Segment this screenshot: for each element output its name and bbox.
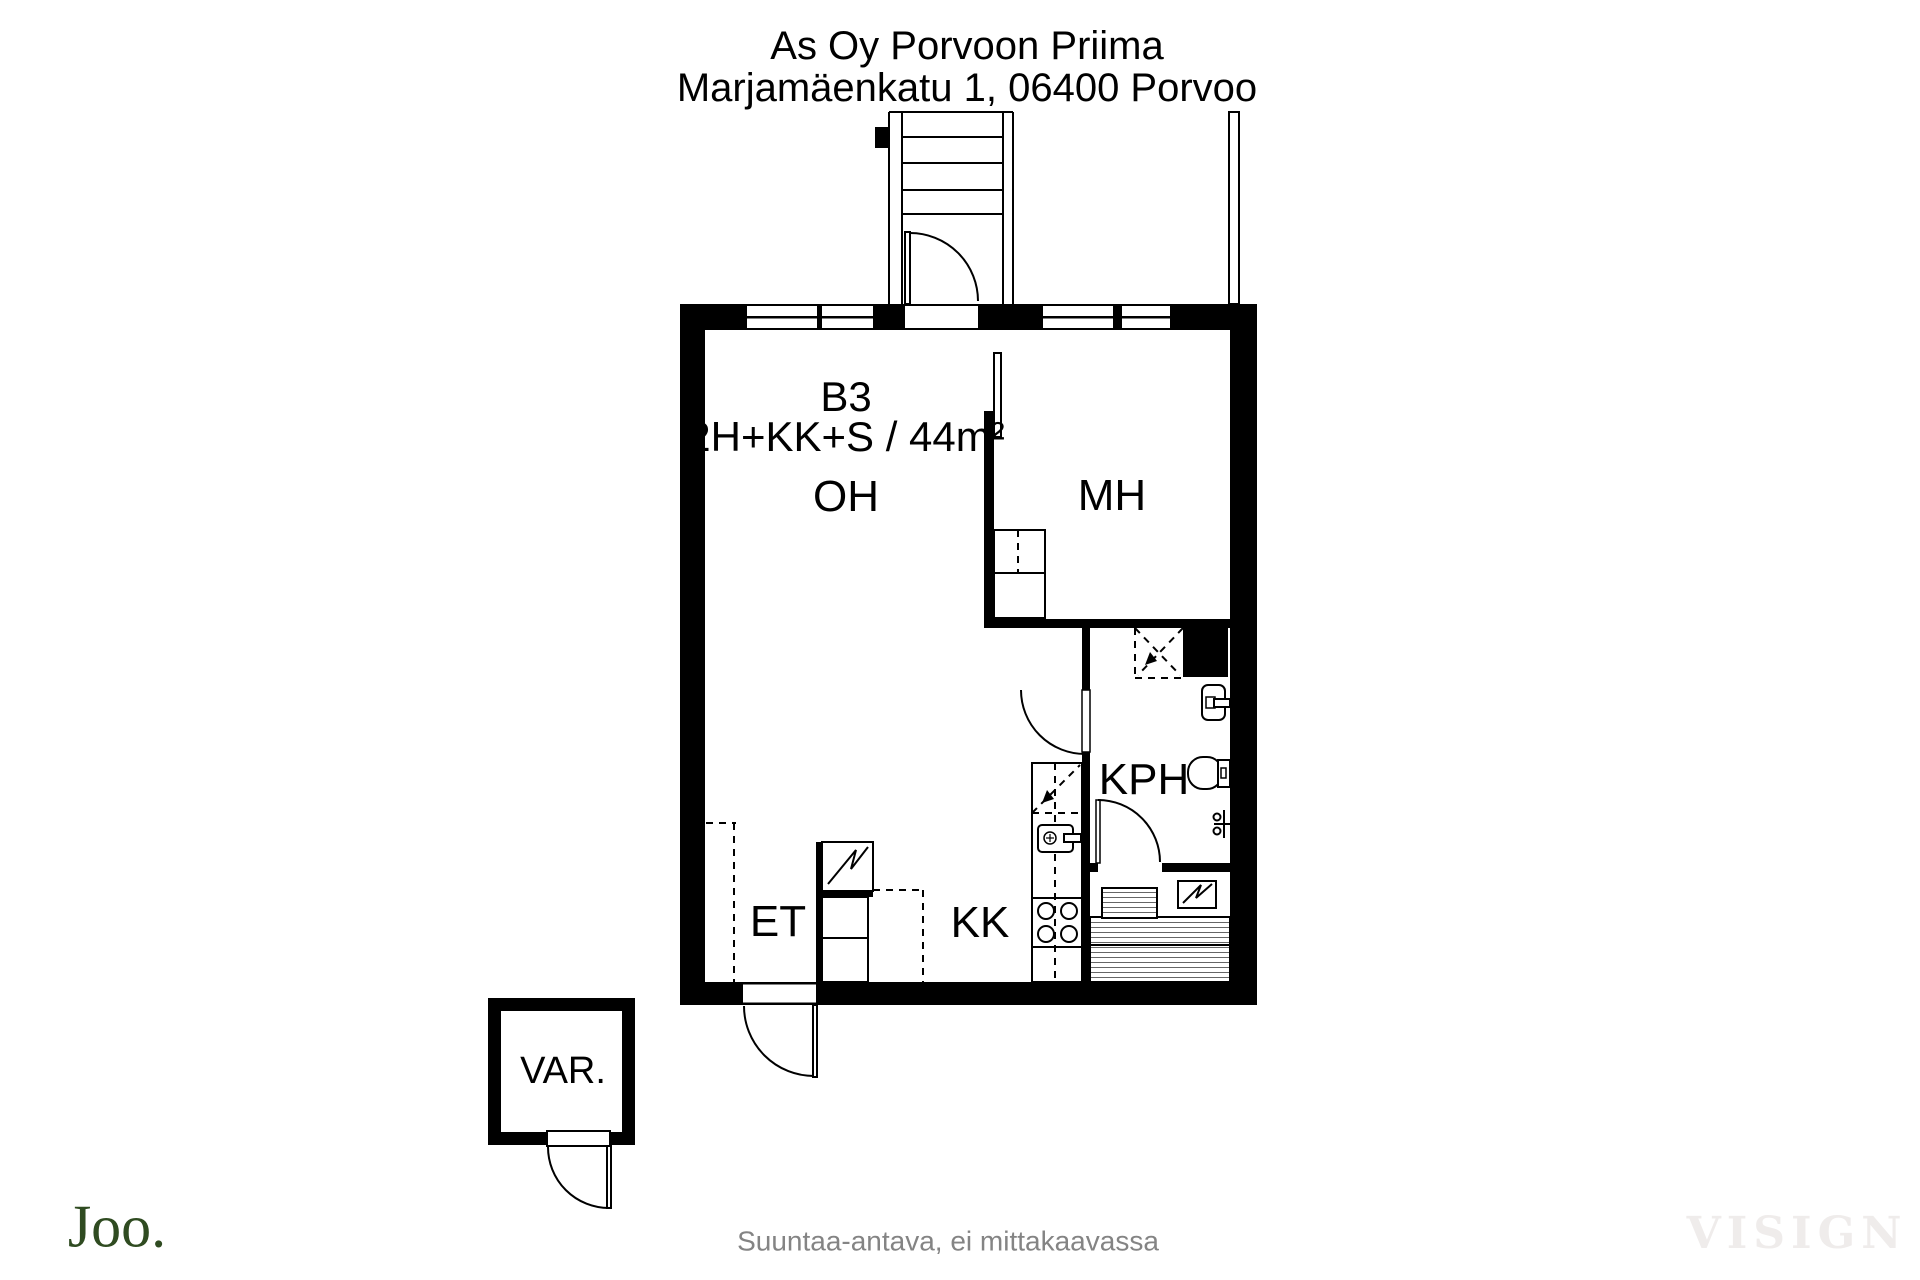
- balcony-railing: [1229, 112, 1239, 304]
- kitchen-counter: [1032, 763, 1082, 982]
- stair-post-marker: [875, 127, 890, 148]
- room-label-bedroom: MH: [1078, 473, 1146, 519]
- room-label-storage: VAR.: [520, 1052, 606, 1092]
- window-living-1: [747, 306, 817, 328]
- room-label-kitchenette: KK: [951, 900, 1010, 946]
- building-name: As Oy Porvoon Priima: [770, 25, 1163, 67]
- disclaimer-text: Suuntaa-antava, ei mittakaavassa: [737, 1226, 1159, 1255]
- floorplan-drawing: [0, 0, 1920, 1280]
- sauna-stove: [1178, 881, 1216, 908]
- balcony-door: [905, 232, 978, 304]
- window-living-2: [822, 306, 873, 328]
- building-address: Marjamäenkatu 1, 06400 Porvoo: [677, 67, 1257, 109]
- sauna-door: [1096, 800, 1160, 863]
- room-label-living: OH: [813, 474, 879, 520]
- window-bedroom-1: [1043, 306, 1113, 328]
- window-bedroom-2: [1122, 306, 1170, 328]
- bathroom-door: [1021, 690, 1090, 754]
- entry-closet: [822, 897, 868, 982]
- toilet: [1188, 757, 1230, 789]
- shower-slope-arrow: [1145, 652, 1157, 665]
- watermark-logo: VISIGN: [1687, 1211, 1908, 1257]
- closet-reservation-dashed: [873, 890, 923, 982]
- bedroom-wardrobe: [994, 530, 1045, 618]
- room-label-bathroom: KPH: [1099, 757, 1189, 803]
- room-label-entry: ET: [750, 899, 806, 945]
- electrical-panel: [822, 842, 873, 891]
- floorplan-page: As Oy Porvoon Priima Marjamäenkatu 1, 06…: [0, 0, 1920, 1280]
- washbasin: [1202, 685, 1230, 720]
- entry-door: [742, 984, 817, 1078]
- shower-area: [1135, 628, 1183, 678]
- windows: [747, 306, 1170, 328]
- coat-rack-dashed: [706, 823, 736, 982]
- storage-box: [488, 998, 635, 1208]
- towel-hook: [1214, 810, 1231, 838]
- unit-type: 2H+KK+S / 44m²: [687, 415, 1004, 459]
- brand-logo: Joo.: [68, 1196, 166, 1259]
- balcony-door-opening: [905, 306, 978, 328]
